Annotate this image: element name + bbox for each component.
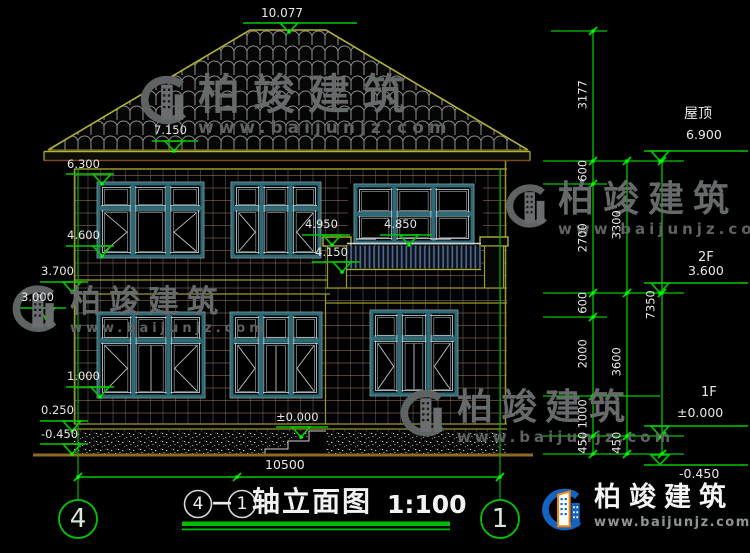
dim-roof-rise: 3177: [577, 63, 589, 127]
title-axis-separator: —: [212, 492, 232, 512]
dim-grip: [658, 291, 661, 294]
dim-grip: [76, 475, 79, 478]
dim-grip: [591, 315, 594, 318]
elev-roof-eave: 7.150: [154, 125, 187, 137]
elev-0250: 0.250: [41, 405, 74, 417]
dim-grip: [98, 395, 101, 398]
dim-grip: [591, 434, 594, 437]
dim-2000: 2000: [577, 322, 589, 386]
level-roof-label: 屋顶: [684, 107, 712, 121]
dim-grip: [591, 291, 594, 294]
dim-grip: [100, 254, 103, 257]
dim-grip: [498, 475, 501, 478]
balcony-railing-bars: [347, 246, 481, 269]
balcony-post-cap: [480, 237, 508, 246]
eave-fascia: [44, 152, 530, 161]
elev-minus0450: -0.450: [41, 429, 78, 441]
company-logo: 柏竣建筑 www.baijunjz.com: [538, 484, 750, 542]
elev-4950: 4.950: [305, 219, 338, 231]
elev-4850: 4.850: [384, 219, 417, 231]
company-logo-url: www.baijunjz.com: [594, 516, 750, 529]
dim-3300: 3300: [611, 193, 623, 257]
dim-grip: [625, 159, 628, 162]
dim-grip: [625, 291, 628, 294]
dim-2700: 2700: [577, 206, 589, 270]
level-2f-value: 3.600: [688, 265, 724, 278]
elev-peak: 10.077: [261, 7, 303, 19]
dim-3600: 3600: [611, 330, 623, 394]
company-logo-brand: 柏竣建筑: [594, 484, 750, 511]
dim-grip: [299, 435, 302, 438]
dim-grip: [625, 452, 628, 455]
dim-grip: [287, 30, 290, 33]
dim-grip: [591, 452, 594, 455]
elevation-drawing-canvas: [0, 0, 750, 553]
elev-6300: 6.300: [67, 159, 100, 171]
elev-4600: 4.600: [67, 230, 100, 242]
drawing-scale: 1:100: [387, 492, 467, 517]
roof-tile-hatch: [48, 30, 528, 150]
dim-grip: [658, 159, 661, 162]
dim-grip: [591, 29, 594, 32]
dim-grip: [172, 149, 175, 152]
balcony-post: [485, 246, 504, 288]
dim-grip: [340, 270, 343, 273]
dim-grip: [100, 182, 103, 185]
dim-600: 600: [577, 139, 589, 203]
axis-bubble-4: 4: [58, 506, 98, 532]
dim-grip: [591, 159, 594, 162]
dim-450: 450: [577, 411, 589, 475]
level-1f-label: 1F: [701, 386, 717, 399]
title-underline-thin: [182, 529, 450, 531]
axis-bubble-1: 1: [480, 506, 520, 532]
elev-zero: ±0.000: [276, 412, 319, 424]
dim-grip: [591, 394, 594, 397]
window-frame: [99, 184, 202, 256]
dim-grip: [70, 290, 73, 293]
dim-total-height: 7350: [645, 273, 657, 337]
dim-grip: [235, 475, 238, 478]
dim-450: 450: [611, 411, 623, 475]
level-roof-value: 6.900: [686, 129, 722, 142]
dim-grip: [407, 243, 410, 246]
elev-3700: 3.700: [41, 266, 74, 278]
level-1f-value: ±0.000: [677, 407, 723, 420]
drawing-title: 轴立面图: [252, 488, 372, 516]
title-underline: [182, 522, 450, 527]
dim-grip: [625, 434, 628, 437]
elev-1000: 1.000: [67, 371, 100, 383]
level-ground-value: -0.450: [679, 468, 719, 481]
dim-total-width: 10500: [265, 459, 305, 472]
dim-grip: [658, 434, 661, 437]
elev-4150: 4.150: [315, 247, 348, 259]
title-axis-start: 4: [183, 496, 213, 513]
elev-3000: 3.000: [21, 292, 54, 304]
dim-grip: [70, 452, 73, 455]
cad-elevation-sheet: 柏竣建筑 www.baijunjz.com 柏竣建筑 www.baijunjz.…: [0, 0, 750, 553]
company-logo-icon: [538, 484, 588, 542]
dim-grip: [591, 182, 594, 185]
dim-grip: [44, 316, 47, 319]
